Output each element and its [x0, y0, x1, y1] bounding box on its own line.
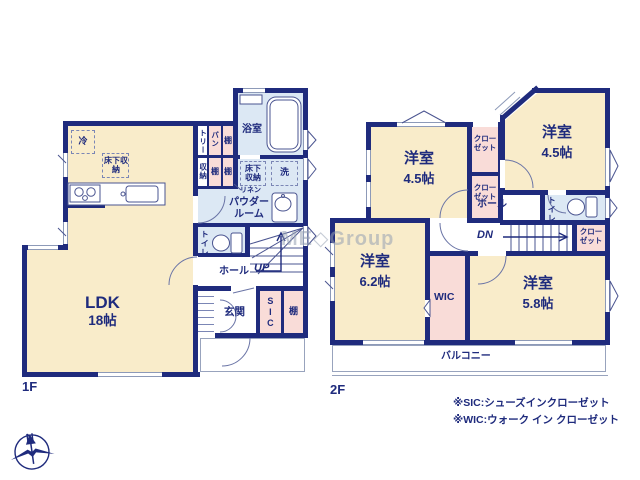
storage-label: 収納 [198, 163, 207, 180]
wall [245, 223, 250, 257]
powder-room-label: パウダールーム [226, 197, 272, 220]
closet-c-label: クローゼット [577, 228, 605, 245]
compass-icon: N [7, 429, 56, 472]
room-sw-size: 6.2帖 [345, 275, 405, 290]
window [98, 372, 162, 377]
room-ldk-lower [27, 250, 67, 372]
door-gap [478, 251, 506, 256]
window [63, 153, 68, 177]
wall [233, 157, 238, 189]
window [363, 340, 424, 345]
room-ne-size: 4.5帖 [522, 146, 592, 161]
compass-north-label: N [25, 432, 35, 445]
room-nw-name: 洋室 [384, 150, 454, 167]
ldk-size: 18帖 [65, 313, 140, 329]
window [605, 148, 610, 186]
entrance-shelf-label: 棚 [285, 306, 302, 316]
room-ldk [67, 126, 193, 372]
toilet-2f-label: トイレ [547, 196, 556, 223]
window [63, 222, 68, 244]
floor1-label: 1F [22, 380, 37, 395]
door-gap [500, 160, 505, 188]
room-se-size: 5.8帖 [503, 297, 573, 312]
wall [303, 88, 308, 338]
room-se-name: 洋室 [503, 275, 573, 292]
fridge-label: 冷 [71, 136, 95, 146]
note-wic: ※WIC:ウォーク イン クローゼット [453, 414, 619, 426]
door-gap [193, 256, 198, 285]
shelf-a-label: 棚 [209, 167, 221, 176]
wall [256, 286, 260, 335]
closet-a-label: クローゼット [472, 135, 498, 152]
door-gap [425, 300, 430, 317]
window [366, 182, 371, 207]
toilet-1f-label: トイレ [200, 230, 209, 257]
floor-plan: N 冷 床下収納 LDK 18帖 トリー パン 棚 収納 棚 棚 浴室 床下収納… [0, 0, 640, 480]
stairs-dn-arrow [503, 233, 567, 241]
wall [532, 88, 610, 93]
window [605, 280, 610, 312]
window [243, 88, 265, 93]
balcony-rail [332, 375, 608, 376]
wall [22, 245, 27, 377]
wall [472, 172, 498, 176]
sic-label: SIC [265, 296, 275, 329]
window [515, 340, 572, 345]
window [397, 122, 445, 127]
pantry-label-right: パン [210, 131, 219, 148]
linen-label: リネン [240, 187, 261, 195]
wall [195, 155, 235, 158]
room-sw-name: 洋室 [345, 253, 405, 270]
door-gap [240, 155, 260, 159]
wall-kitchen-counter [65, 203, 105, 208]
wall [330, 218, 428, 223]
window [605, 198, 610, 218]
note-sic: ※SIC:シューズインクローゼット [453, 397, 610, 409]
wall [195, 286, 231, 291]
stairs-dn-label: DN [477, 229, 493, 242]
wall [193, 121, 198, 377]
bathroom-label: 浴室 [242, 124, 262, 136]
wall [195, 186, 238, 189]
pantry-shelf-label: 棚 [223, 136, 233, 145]
ldk-name: LDK [65, 293, 140, 313]
stairs-up-label: UP [254, 262, 269, 275]
wall [465, 256, 470, 345]
wic-label: WIC [434, 291, 454, 303]
underfloor-storage-wash-label: 床下収納 [242, 164, 264, 182]
hall-2f-label: ホール [477, 199, 507, 211]
room-nw-size: 4.5帖 [384, 172, 454, 187]
window [303, 130, 308, 150]
entrance-label: 玄関 [224, 306, 245, 318]
window [330, 277, 335, 301]
wall [425, 218, 430, 345]
window [303, 158, 308, 180]
door-gap [193, 196, 198, 223]
wall [63, 121, 238, 126]
window [28, 245, 58, 250]
balcony-label: バルコニー [441, 351, 491, 363]
wall [215, 333, 308, 338]
window [366, 150, 371, 175]
room-ne-name: 洋室 [522, 124, 592, 141]
corner-cut [503, 90, 541, 122]
entrance-step [198, 296, 214, 333]
washer-label: 洗 [276, 167, 293, 177]
shelf-b-label: 棚 [223, 167, 233, 176]
wall [233, 88, 238, 159]
floor2-label: 2F [330, 383, 345, 398]
stairs-2f [511, 225, 567, 251]
hall-1f-label: ホール [219, 266, 249, 278]
underfloor-storage-kitchen-label: 床下収納 [104, 156, 128, 174]
door-gap [548, 190, 566, 195]
wall [425, 251, 610, 256]
wall [281, 291, 284, 333]
entrance-porch [200, 338, 305, 372]
pantry-label-left: トリー [198, 129, 207, 155]
watermark: ME◇Group [281, 226, 394, 251]
